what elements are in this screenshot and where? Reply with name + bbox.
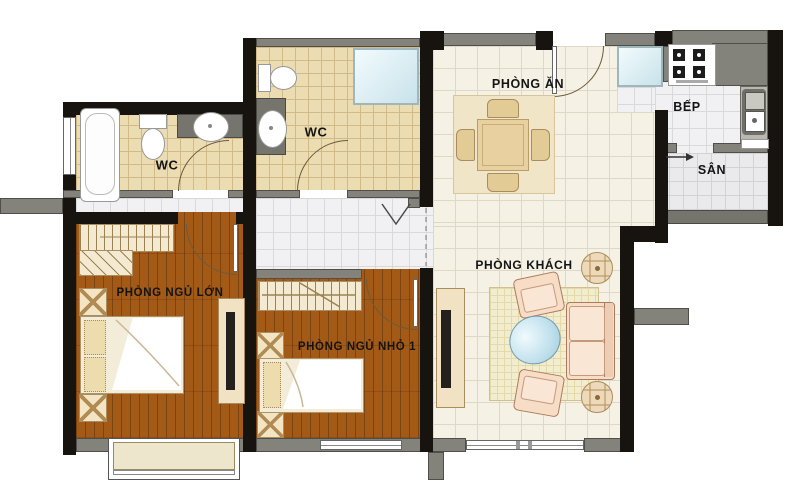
master-door-leaf [233,224,238,272]
small-nightstand-bottom [257,411,284,438]
sliding-window-divider-2 [528,441,532,449]
side-table-top [581,252,613,284]
sofa-back [604,303,613,377]
wall-master-top-right [236,212,256,224]
master-pillow-2 [84,357,106,392]
wall-dining-top-right [605,33,655,46]
wall-dining-top-left [433,33,536,46]
wall-mid-upper [420,38,433,207]
label-kitchen: BẾP [673,100,701,114]
wall-mid-lower [420,268,433,452]
yard-floor [655,153,768,210]
small-pillow [263,362,281,408]
wall-wc2-top [256,38,420,47]
master-pillow-1 [84,320,106,355]
bathtub-inner [85,113,115,195]
small-wardrobe [258,281,362,311]
sofa-cushion-2 [569,341,605,376]
label-bath-second: WC [305,125,328,140]
label-bedroom-small: PHÒNG NGỦ NHỎ 1 [298,341,416,353]
floor-plan: WC WC PHÒNG ĂN BẾP SÂN PHÒNG KHÁCH PHÒNG… [0,0,796,482]
wall-wc2-bottom-right [347,190,420,198]
small-nightstand-top [257,332,284,359]
dining-table-inner [482,124,524,166]
kitchen-threshold [617,87,655,112]
fin-left [0,198,63,214]
wc2-sink-drain [269,126,273,130]
bay-window-sill [113,442,235,470]
master-wardrobe-shelves [79,250,133,276]
sofa-cushion-1 [569,306,605,341]
wall-right [768,30,783,226]
wall-bedroom-small-top [256,269,362,279]
dining-chair-top [487,99,519,118]
kitchen-window [617,46,663,87]
wc2-toilet-bowl [270,66,297,90]
stub-passage [408,198,420,208]
stove-burner-2 [693,49,705,61]
wall-left-lower [63,198,76,455]
label-bedroom-master: PHÒNG NGỦ LỚN [116,287,223,299]
master-nightstand-top [79,288,107,316]
kitchen-sink-drain [752,118,757,123]
master-wardrobe [79,224,174,252]
wc1-toilet-tank [139,114,167,129]
bay-window-glass-line [113,470,235,475]
master-nightstand-bottom [79,394,107,422]
label-living: PHÒNG KHÁCH [475,258,572,272]
living-window-block-left [428,438,466,452]
living-tv [441,310,451,388]
stove-vent [676,80,708,83]
wall-master-top-left [63,212,178,224]
wc1-toilet-bowl [141,128,165,160]
stove-burner-1 [673,49,685,61]
wall-living-connector [620,226,668,242]
dining-chair-bottom [487,173,519,192]
wall-living-right [620,242,634,452]
stove-burner-3 [673,66,685,78]
stove-burner-4 [693,66,705,78]
dining-chair-left [456,129,475,161]
label-bath-master: WC [156,158,179,173]
shower-enclosure [353,48,419,105]
bedroom-small-door-leaf [413,279,418,327]
wall-yard-bottom [655,210,768,224]
side-table-bottom [581,381,613,413]
wall-master-bottom-left [63,438,76,455]
corridor-floor-2 [256,198,433,269]
living-sliding-window [466,440,584,450]
kitchen-sink-drainer [745,92,765,110]
wall-wc-column [243,38,256,224]
wall-wc2-bottom-left [256,190,300,198]
label-yard: SÂN [698,163,726,177]
fin-right [634,308,689,325]
bedroom-small-window [320,440,402,450]
wall-kitchen-divider [655,110,668,243]
kitchen-corner-counter [712,43,768,86]
wc1-sink-drain [208,124,212,128]
label-dining: PHÒNG ĂN [492,77,564,91]
dish-rack [741,139,769,149]
wall-entry-block [536,31,553,50]
dining-chair-right [531,129,550,161]
master-tv [226,312,235,390]
stub-bottom [428,452,444,480]
sliding-window-divider [516,441,520,449]
wc1-window [63,117,76,175]
wall-corner-block [420,31,444,50]
